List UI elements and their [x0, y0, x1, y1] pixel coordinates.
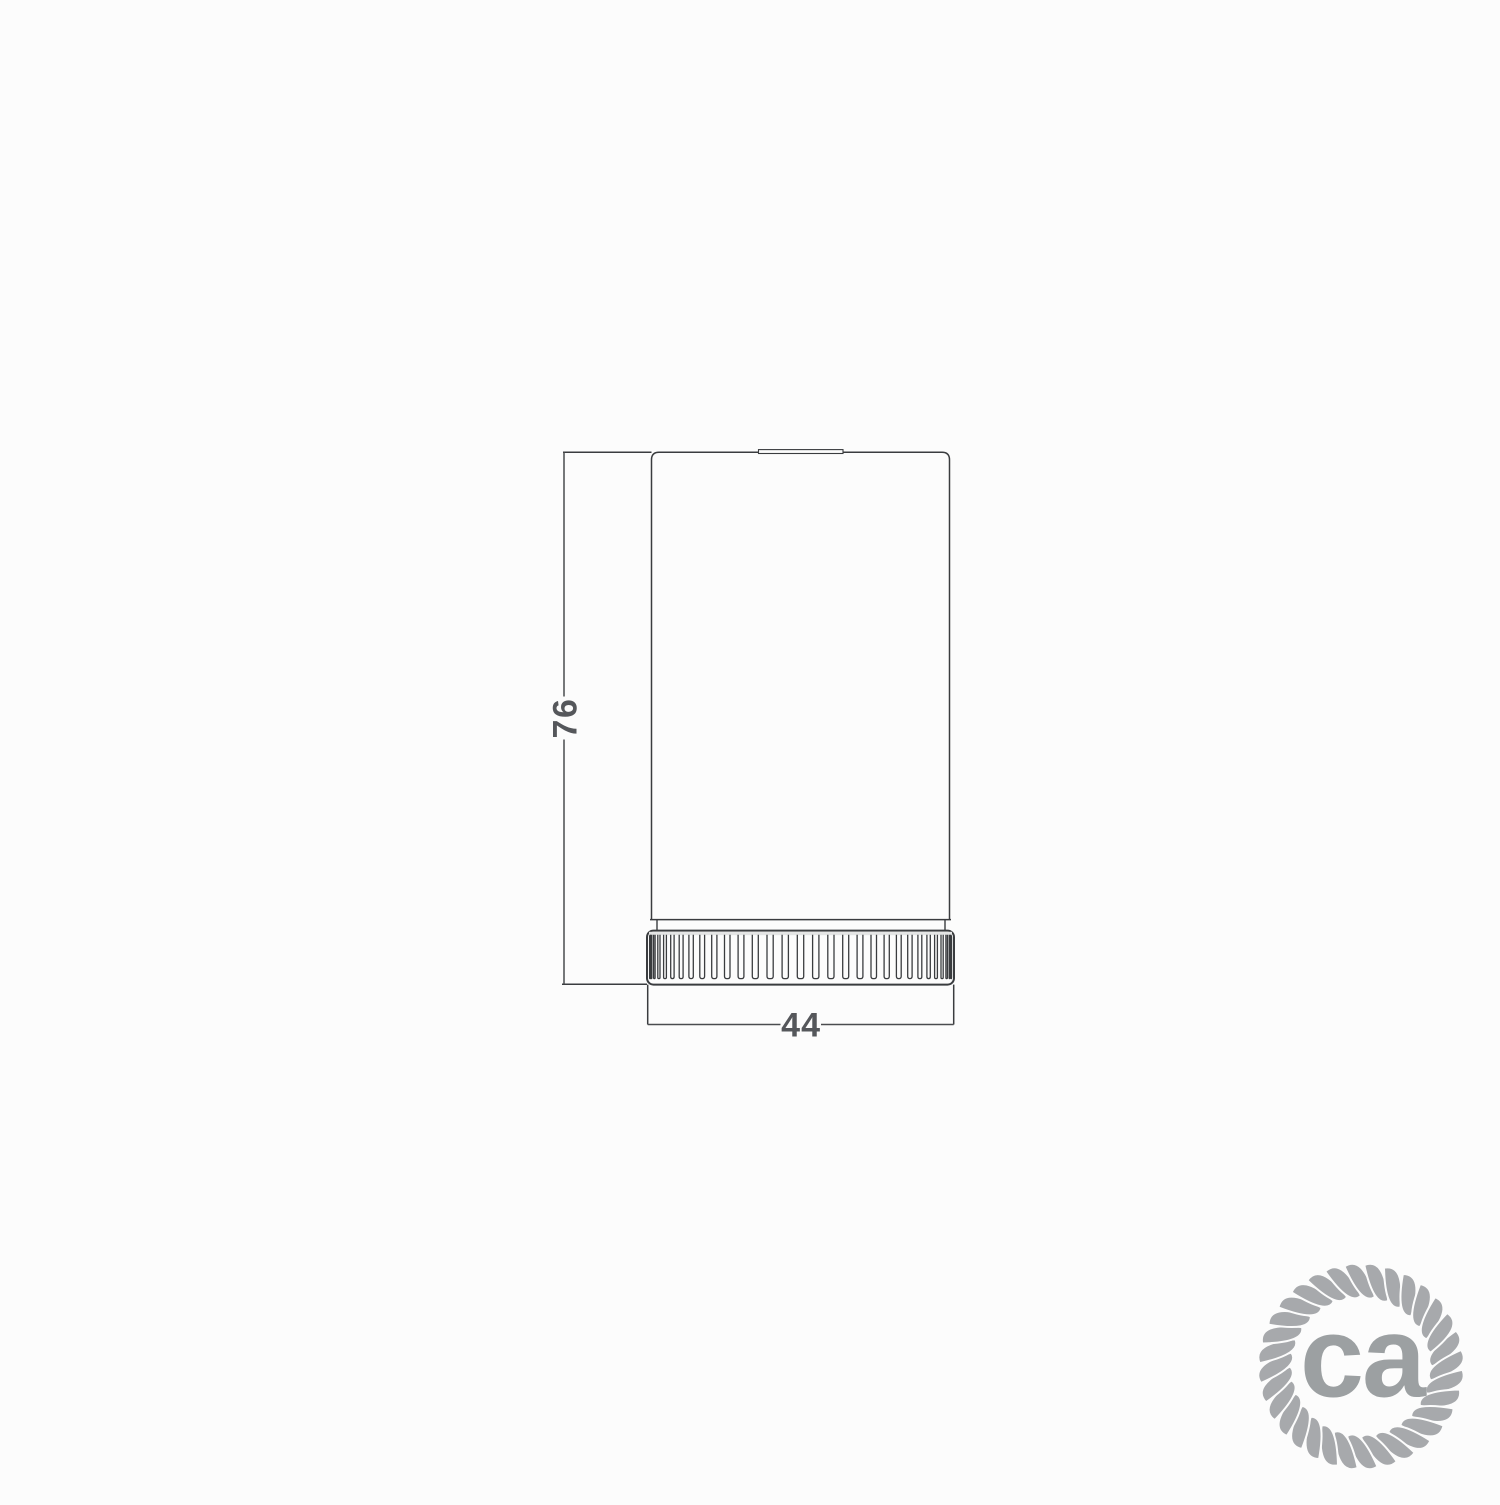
svg-text:ca: ca — [1300, 1294, 1427, 1422]
svg-text:44: 44 — [781, 1006, 821, 1044]
svg-text:76: 76 — [546, 697, 584, 738]
